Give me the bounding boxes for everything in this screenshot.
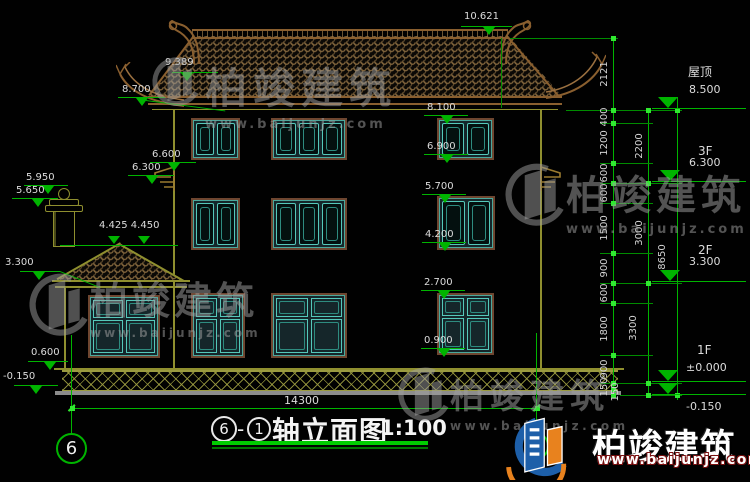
- brand-site: www.baijunjz.com: [597, 452, 750, 468]
- ext-line: [600, 355, 653, 356]
- dim-8650: 8650: [658, 244, 668, 269]
- ext-line: [600, 253, 653, 254]
- dim-tick: [70, 406, 75, 411]
- title-axis-1: 1: [254, 420, 264, 438]
- watermark-top: 柏竣建筑 www.baijunjz.com: [205, 55, 397, 132]
- level-triangle: [146, 176, 158, 184]
- watermark-logo-icon: [143, 55, 205, 115]
- dim-2200: 2200: [635, 133, 645, 158]
- level-triangle: [44, 362, 56, 370]
- window-2f-left: [191, 198, 240, 250]
- level-triangle: [658, 370, 678, 381]
- dim-tick: [611, 281, 616, 286]
- brand-logo-icon: [492, 412, 590, 480]
- ridge-ornament-right-icon: [498, 18, 540, 64]
- title-underline: [212, 441, 428, 445]
- watermark-left: 柏竣建筑 www.baijunjz.com: [90, 270, 261, 340]
- dim-tick: [611, 251, 616, 256]
- level-triangle: [660, 270, 680, 281]
- level-triangle: [32, 199, 44, 207]
- dim-tick: [611, 353, 616, 358]
- level-label-6300: 6.300: [132, 163, 161, 173]
- level-label-10621: 10.621: [464, 12, 499, 22]
- floor-level-1f: ±0.000: [686, 362, 727, 373]
- dim-3300: 3300: [629, 315, 639, 340]
- level-triangle: [658, 97, 678, 108]
- ext-line: [566, 110, 682, 111]
- level-line: [652, 108, 746, 109]
- level-label-3300-left: 3.300: [5, 258, 34, 268]
- level-triangle: [168, 163, 180, 171]
- level-triangle: [439, 243, 451, 251]
- floor-level-2f: 3.300: [689, 256, 721, 267]
- window-1f-middle: [271, 293, 347, 358]
- level-triangle: [441, 116, 453, 124]
- title-axis-circle-1: 1: [247, 417, 271, 441]
- axis-bubble-6-label: 6: [66, 438, 77, 459]
- floor-name-1f: 1F: [697, 344, 712, 356]
- level-triangle: [438, 349, 450, 357]
- main-wall-right: [540, 110, 542, 370]
- level-triangle: [439, 195, 451, 203]
- level-label-8100: 8.100: [427, 103, 456, 113]
- level-label-5650: 5.650: [16, 186, 45, 196]
- level-label-6900: 6.900: [427, 142, 456, 152]
- level-line: [652, 381, 746, 382]
- cad-elevation-drawing: 14300 6 1 9.389 8.700 6.600 6.300 5.950 …: [0, 0, 750, 482]
- floor-level-minus0150: -0.150: [686, 401, 721, 412]
- level-triangle: [658, 383, 678, 394]
- watermark-right: 柏竣建筑 www.baijunjz.com: [566, 163, 747, 237]
- dim-400: 400: [600, 107, 610, 126]
- title-separator: -: [237, 419, 244, 439]
- dim-tick: [646, 281, 651, 286]
- title-underline-2: [212, 447, 428, 449]
- watermark-brand: 柏竣建筑: [566, 173, 746, 219]
- watermark-logo-icon: [394, 365, 450, 431]
- watermark-site: www.baijunjz.com: [205, 117, 397, 132]
- dim-tick: [646, 108, 651, 113]
- dim-2121: 2121: [600, 61, 610, 86]
- level-label-5700: 5.700: [425, 182, 454, 192]
- dim-900: 900: [600, 258, 610, 277]
- window-2f-middle: [271, 198, 347, 250]
- main-roof-ridge: [192, 29, 508, 39]
- ext-line: [510, 38, 618, 39]
- ext-line: [600, 303, 653, 304]
- level-label-6600: 6.600: [152, 150, 181, 160]
- dim-chain-total-line: [677, 97, 678, 400]
- level-label-4425-4450: 4.425 4.450: [99, 221, 159, 231]
- overall-width-label: 14300: [284, 395, 319, 406]
- level-line: [60, 245, 178, 246]
- watermark-brand: 柏竣建筑: [205, 64, 397, 113]
- dim-chain-b-line: [648, 108, 649, 396]
- floor-name-roof: 屋顶: [688, 66, 712, 78]
- level-triangle: [441, 155, 453, 163]
- level-triangle: [483, 27, 495, 35]
- level-label-5950: 5.950: [26, 173, 55, 183]
- dim-tick: [611, 301, 616, 306]
- level-label-minus0150-left: -0.150: [3, 372, 35, 382]
- chimney-body: [53, 211, 75, 247]
- watermark-brand: 柏竣建筑: [90, 279, 258, 323]
- ext-line: [620, 395, 682, 396]
- level-triangle: [138, 236, 150, 244]
- level-label-0900: 0.900: [424, 336, 453, 346]
- watermark-site: www.baijunjz.com: [566, 222, 747, 237]
- level-triangle: [108, 236, 120, 244]
- level-line: [652, 281, 746, 282]
- level-line: [652, 394, 746, 395]
- dim-600: 600: [600, 283, 610, 302]
- axis-bubble-6: 6: [56, 433, 87, 464]
- level-triangle: [30, 386, 42, 394]
- dim-tick: [611, 108, 616, 113]
- level-triangle: [438, 291, 450, 299]
- flying-eave-right-icon: [546, 50, 606, 102]
- watermark-site: www.baijunjz.com: [90, 326, 261, 340]
- watermark-logo-icon: [26, 268, 88, 350]
- dim-tick: [646, 381, 651, 386]
- floor-level-roof: 8.500: [689, 84, 721, 95]
- dim-1800: 1800: [600, 316, 610, 341]
- watermark-brand: 柏竣建筑: [450, 377, 610, 417]
- level-label-2700: 2.700: [424, 278, 453, 288]
- dim-tick: [611, 121, 616, 126]
- ext-line: [501, 38, 502, 108]
- title-axis-6: 6: [219, 420, 229, 438]
- dim-tick: [646, 393, 651, 398]
- dim-tick: [611, 36, 616, 41]
- watermark-logo-icon: [502, 160, 564, 238]
- title-axis-circle-6: 6: [211, 416, 237, 442]
- dim-1200: 1200: [600, 130, 610, 155]
- level-label-4200: 4.200: [425, 230, 454, 240]
